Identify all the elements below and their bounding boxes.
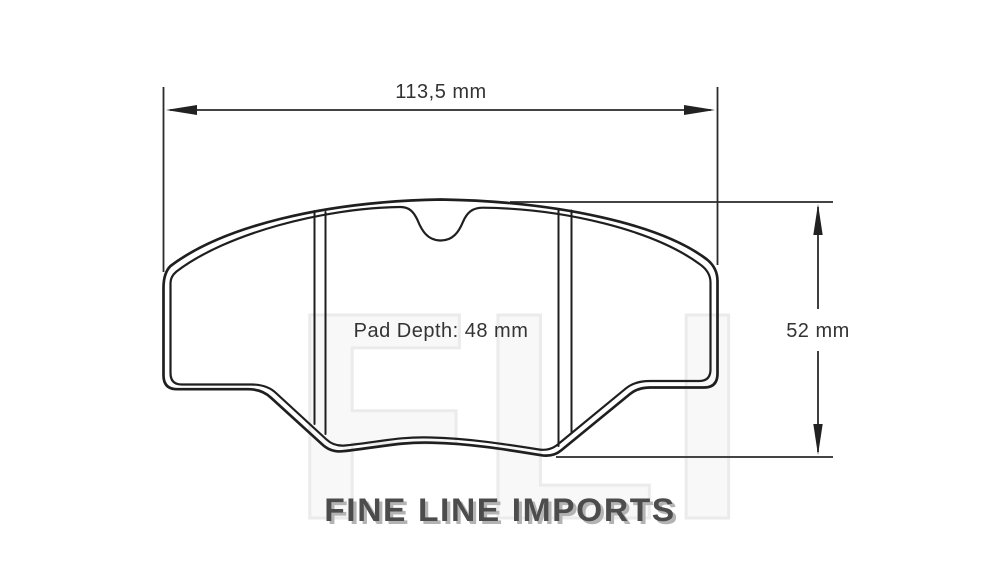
width-dimension [164, 87, 718, 272]
arrowhead-right-icon [684, 105, 715, 115]
right-slot [559, 210, 572, 447]
arrowhead-left-icon [166, 105, 197, 115]
height-dimension-label: 52 mm [782, 320, 854, 343]
left-slot [315, 211, 326, 434]
arrowhead-up-icon [813, 204, 822, 235]
company-logo-text: FINE LINE IMPORTS [324, 492, 676, 529]
pad-depth-label: Pad Depth: 48 mm [354, 320, 529, 343]
brake-pad-technical-drawing [0, 0, 1000, 538]
width-dimension-label: 113,5 mm [395, 81, 486, 104]
technical-drawing-canvas: FLI [0, 0, 1000, 538]
arrowhead-down-icon [813, 424, 822, 455]
